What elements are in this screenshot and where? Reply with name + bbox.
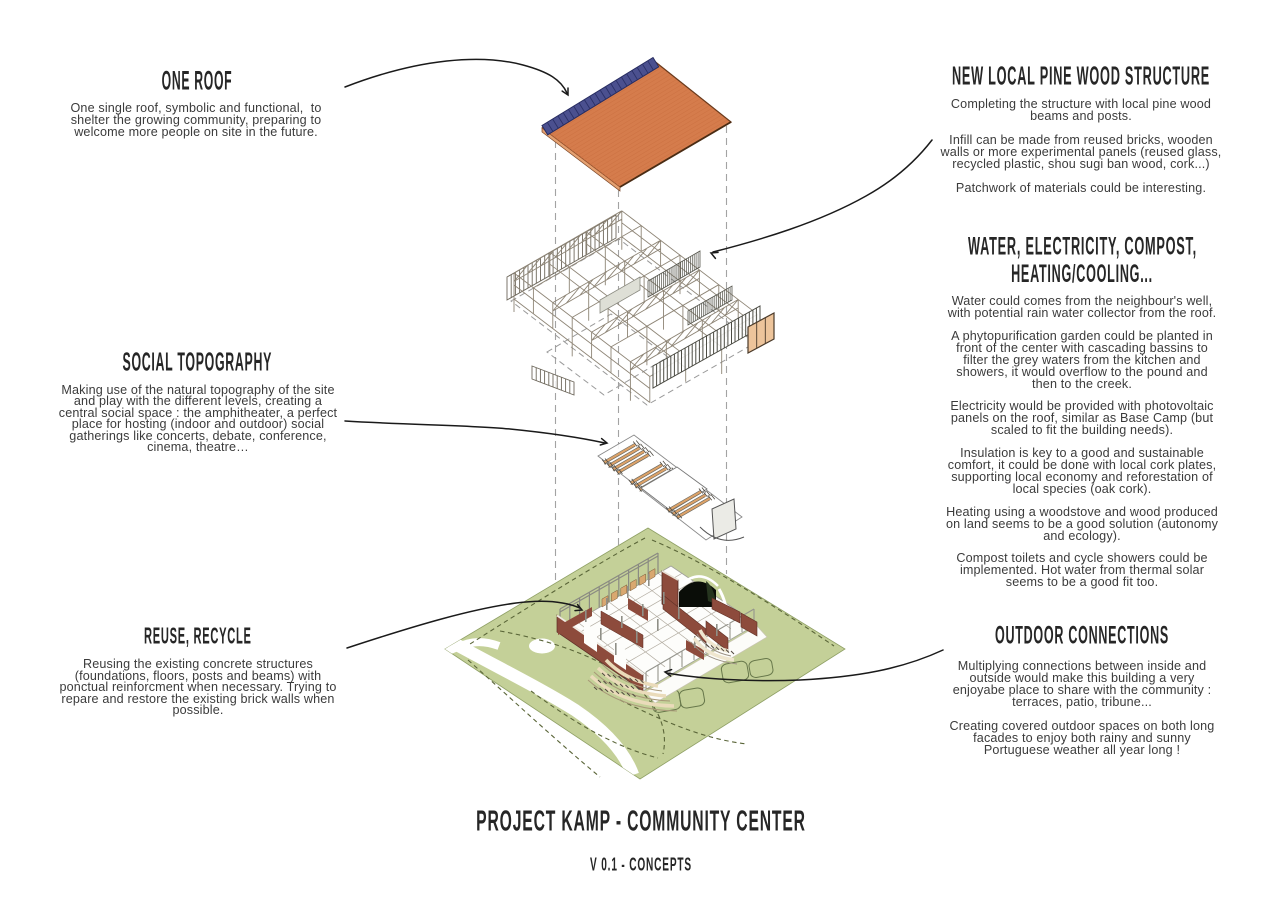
- svg-text:OUTDOOR CONNECTIONS: OUTDOOR CONNECTIONS: [995, 622, 1169, 650]
- svg-text:NEW LOCAL PINE WOOD STRUCTURE: NEW LOCAL PINE WOOD STRUCTURE: [952, 63, 1210, 91]
- svg-text:WATER, ELECTRICITY, COMPOST,: WATER, ELECTRICITY, COMPOST,: [968, 233, 1197, 261]
- svg-text:V 0.1 - CONCEPTS: V 0.1 - CONCEPTS: [590, 856, 692, 876]
- svg-text:PROJECT KAMP - COMMUNITY CENTE: PROJECT KAMP - COMMUNITY CENTER: [476, 805, 806, 837]
- svg-text:ONE ROOF: ONE ROOF: [162, 66, 233, 96]
- svg-text:REUSE, RECYCLE: REUSE, RECYCLE: [144, 622, 252, 649]
- svg-text:SOCIAL TOPOGRAPHY: SOCIAL TOPOGRAPHY: [123, 347, 273, 376]
- svg-text:HEATING/COOLING...: HEATING/COOLING...: [1011, 260, 1153, 288]
